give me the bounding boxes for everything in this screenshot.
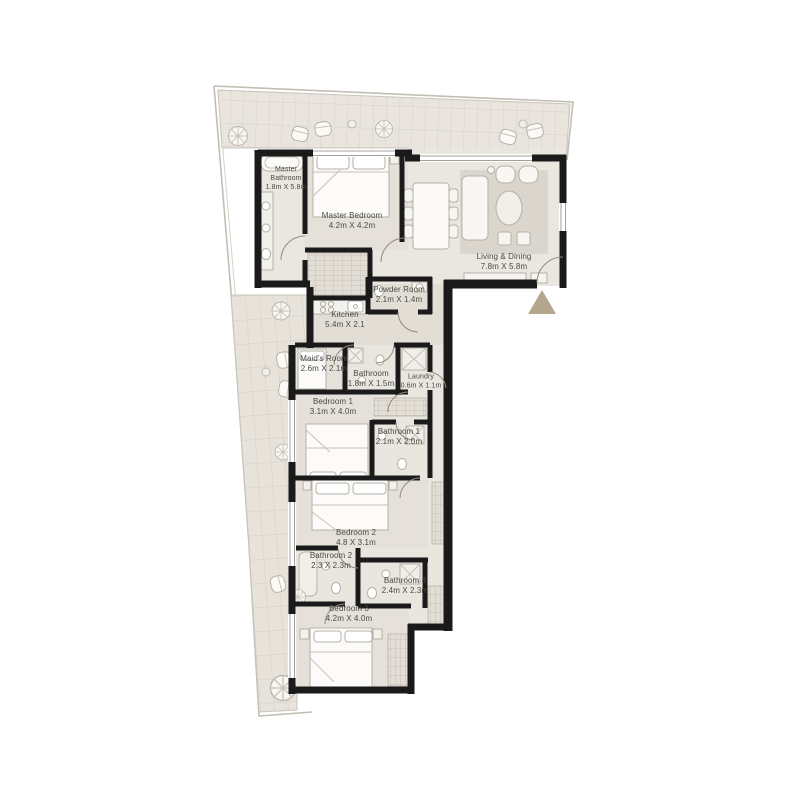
room-label-bathroom-3: Bathroom 3 2.4m X 2.3m xyxy=(382,576,428,596)
room-label-master-bedroom: Master Bedroom 4.2m X 4.2m xyxy=(322,211,383,231)
laundry-machine xyxy=(402,348,426,370)
room-label-bedroom-2: Bedroom 2 4.8 X 3.1m xyxy=(336,528,376,548)
master-bed xyxy=(313,153,399,217)
bedroom2-bed xyxy=(303,480,397,530)
floor-plan-canvas xyxy=(0,0,800,800)
entrance-arrow xyxy=(528,290,556,314)
room-label-living-dining: Living & Dining 7.8m X 5.8m xyxy=(477,252,532,272)
room-label-bathroom: Bathroom 1.8m X 1.5m xyxy=(348,369,394,389)
floor-plan: Master Bathroom 1.8m X 5.8m Master Bedro… xyxy=(0,0,800,800)
room-label-powder-room: Powder Room 2.1m X 1.4m xyxy=(373,285,425,305)
room-label-kitchen: Kitchen 5.4m X 2.1 xyxy=(325,310,365,330)
room-label-bathroom-2: Bathroom 2 2.3 X 2.3m xyxy=(310,551,352,571)
room-label-bathroom-1: Bathroom 1 2.1m X 2.0m xyxy=(376,427,422,447)
room-label-bedroom-1: Bedroom 1 3.1m X 4.0m xyxy=(310,397,356,417)
exterior-walls-thick xyxy=(444,280,537,631)
room-label-laundry: Laundry 0.6m X 1.1m xyxy=(401,373,442,391)
room-label-bedroom-3: Bedroom 3 4.2m X 4.0m xyxy=(326,604,372,624)
room-label-maids-room: Maid's Room 2.6m X 2.1m xyxy=(300,354,348,374)
room-label-master-bathroom: Master Bathroom 1.8m X 5.8m xyxy=(262,166,310,192)
bedroom3-bed xyxy=(300,628,382,688)
